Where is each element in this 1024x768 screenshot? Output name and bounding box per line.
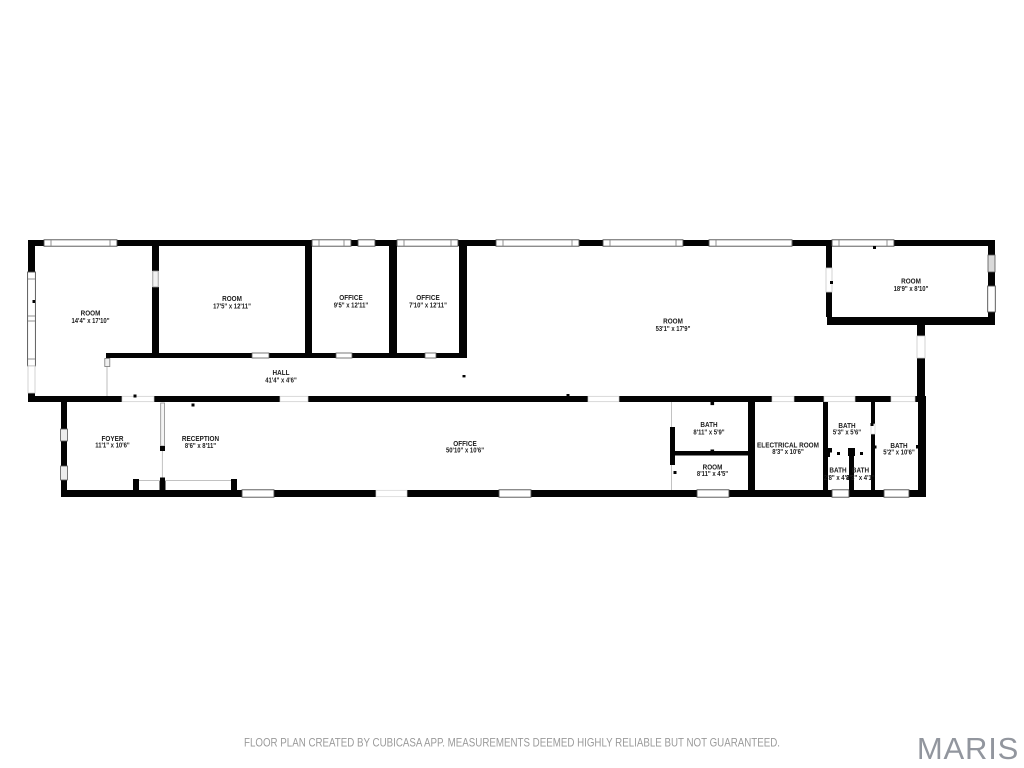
svg-text:8'11" x 4'5": 8'11" x 4'5": [697, 469, 729, 478]
svg-text:5'3" x 5'6": 5'3" x 5'6": [833, 428, 862, 437]
svg-text:9'5" x 12'11": 9'5" x 12'11": [334, 301, 369, 310]
svg-text:2'3" x 4'1": 2'3" x 4'1": [846, 473, 875, 482]
svg-text:14'4" x 17'10": 14'4" x 17'10": [71, 316, 109, 325]
svg-text:8'6" x 8'11": 8'6" x 8'11": [185, 441, 217, 450]
svg-text:8'3" x 10'6": 8'3" x 10'6": [772, 447, 804, 456]
svg-text:41'4" x 4'6": 41'4" x 4'6": [265, 376, 297, 385]
svg-text:17'5" x 12'11": 17'5" x 12'11": [213, 302, 251, 311]
svg-text:FLOOR PLAN CREATED BY CUBICASA: FLOOR PLAN CREATED BY CUBICASA APP. MEAS…: [244, 736, 780, 750]
svg-text:50'10" x 10'6": 50'10" x 10'6": [446, 446, 484, 455]
svg-text:53'1" x 17'9": 53'1" x 17'9": [656, 324, 691, 333]
svg-text:5'2" x 10'6": 5'2" x 10'6": [883, 448, 915, 457]
svg-text:18'9" x 8'10": 18'9" x 8'10": [894, 284, 929, 293]
svg-text:7'10" x 12'11": 7'10" x 12'11": [409, 301, 447, 310]
svg-text:MARIS: MARIS: [917, 731, 1019, 766]
svg-text:8'11" x 5'9": 8'11" x 5'9": [693, 428, 725, 437]
svg-text:11'1" x 10'6": 11'1" x 10'6": [95, 441, 130, 450]
